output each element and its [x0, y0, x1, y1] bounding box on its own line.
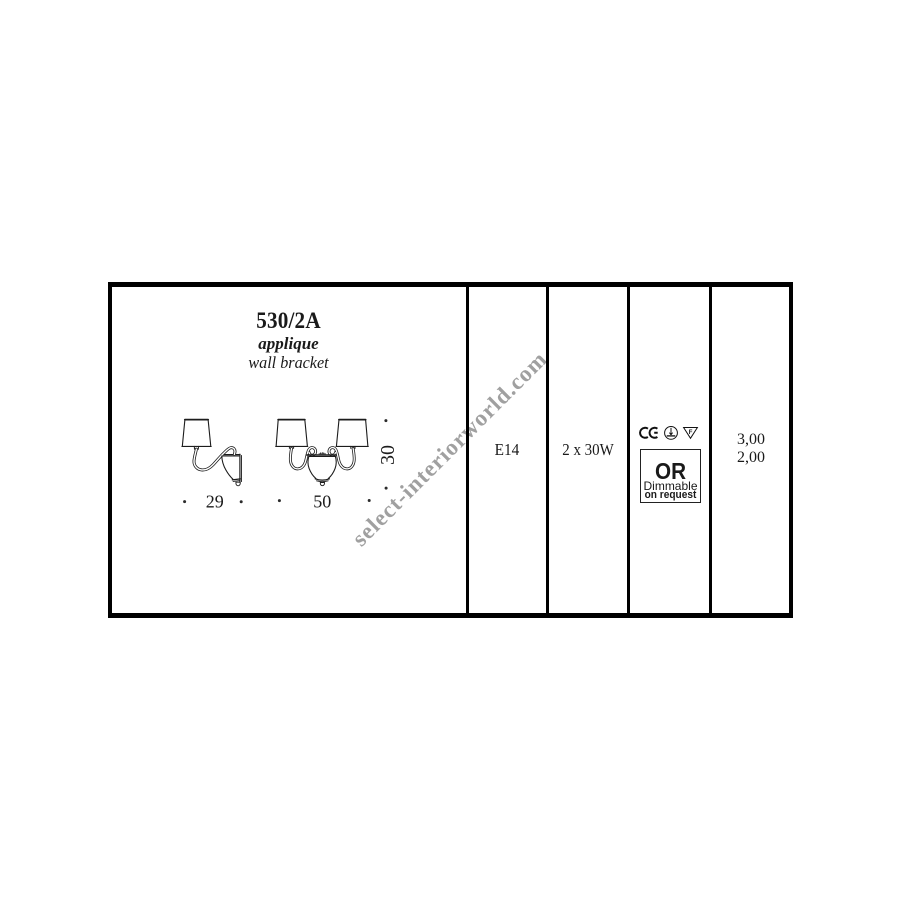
svg-text:F: F: [689, 430, 693, 436]
svg-text:50: 50: [313, 492, 331, 512]
svg-text:29: 29: [206, 491, 224, 511]
svg-text:30: 30: [377, 445, 399, 465]
